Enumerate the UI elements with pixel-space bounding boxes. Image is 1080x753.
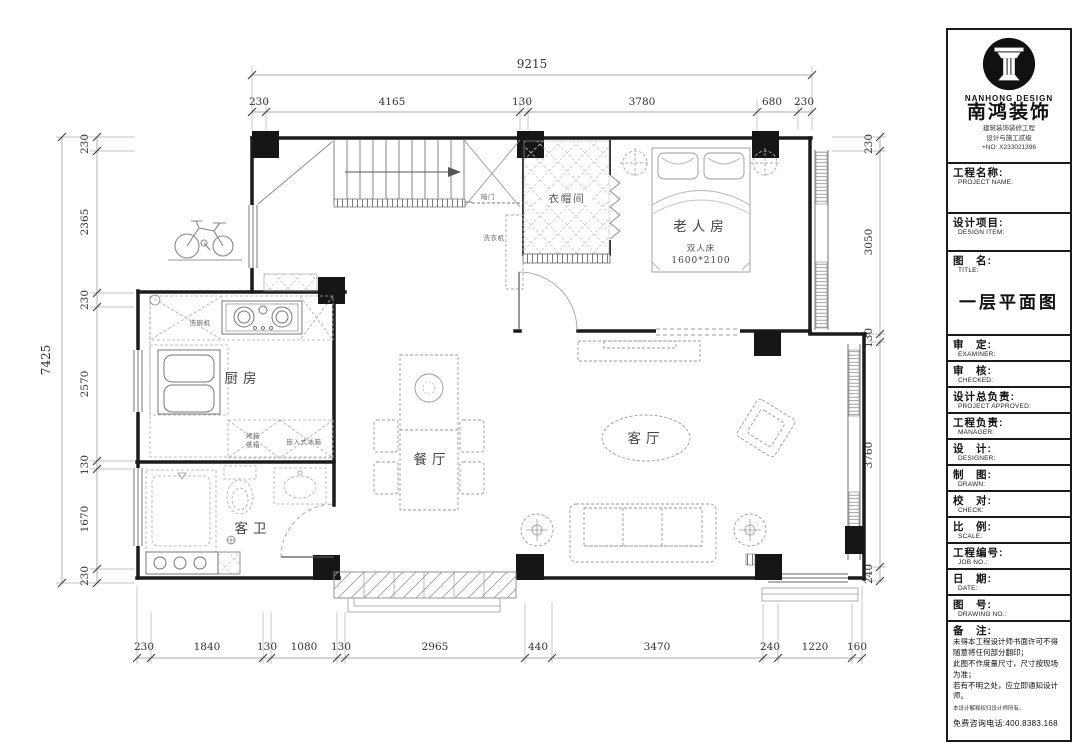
brand-tagline-2: 设计与施工贰级 (986, 134, 1032, 144)
field-project-name: 工程名称: PROJECT NAME: (948, 164, 1070, 214)
fridge-label: 嵌入式冰箱 (287, 437, 322, 446)
svg-text:3470: 3470 (644, 641, 671, 653)
svg-text:130: 130 (79, 455, 91, 475)
dining-area (374, 355, 484, 510)
elder-room-label: 老人房 (673, 219, 729, 234)
field-designer: 设 计: DESIGNER: (948, 440, 1070, 466)
svg-text:230: 230 (794, 96, 814, 108)
brand-area: NANHONG DESIGN 南鸿装饰 建筑装饰装修工程 设计与施工贰级 +NO… (948, 30, 1070, 164)
hotline: 免费咨询电话:400.8383.168 (953, 718, 1065, 729)
svg-text:3780: 3780 (629, 96, 656, 108)
field-checked: 审 核: CHECKED: (948, 362, 1070, 388)
dining-label: 餐厅 (414, 452, 451, 467)
note-line-4: 本设计解释权归设计师所有。 (953, 704, 1065, 712)
field-drawing-no: 图 号: DRAWING NO.: (948, 596, 1070, 622)
svg-text:680: 680 (762, 96, 782, 108)
svg-text:3050: 3050 (863, 229, 875, 256)
svg-text:1670: 1670 (79, 506, 91, 533)
svg-text:230: 230 (863, 134, 875, 154)
svg-text:130: 130 (512, 96, 532, 108)
nanhong-logo-icon (981, 36, 1037, 92)
entry-porch (334, 572, 516, 612)
svg-text:2365: 2365 (79, 209, 91, 236)
closet-label: 衣帽间 (548, 192, 586, 205)
brand-cert-no: +NO: X233021396 (982, 143, 1036, 153)
svg-text:240: 240 (760, 641, 780, 653)
bicycle-drawing (168, 221, 242, 260)
field-scale: 比 例: SCALE: (948, 518, 1070, 544)
svg-text:1080: 1080 (291, 641, 318, 653)
drawing-title: 一层平面图 (953, 288, 1065, 313)
wall-hatch (746, 554, 755, 565)
living-area (521, 341, 796, 562)
svg-text:230: 230 (134, 641, 154, 653)
corner-fitting (150, 295, 160, 305)
dim-left-total: 7425 (39, 345, 53, 376)
dishwasher-label: 洗碗机 (190, 318, 211, 327)
stair-hatch-band (334, 199, 465, 207)
staircase (258, 140, 523, 289)
field-check: 校 对: CHECK: (948, 492, 1070, 518)
armchair (736, 398, 797, 459)
svg-text:2570: 2570 (79, 371, 91, 398)
kitchen (150, 274, 333, 458)
dim-top-total: 9215 (517, 57, 548, 71)
field-job-no: 工程编号: JOB NO.: (948, 544, 1070, 570)
bed-label: 双人床 (687, 243, 716, 253)
svg-text:2965: 2965 (422, 641, 449, 653)
field-manager: 工程负责: MANAGER: (948, 414, 1070, 440)
svg-text:130: 130 (331, 641, 351, 653)
svg-text:230: 230 (249, 96, 269, 108)
svg-text:160: 160 (847, 641, 867, 653)
bed-size-label: 1600*2100 (671, 256, 730, 266)
hidden-door-label: 暗门 (481, 192, 495, 201)
note-line-2: 此图不作度量尺寸，尺寸按现场为准； (953, 659, 1065, 681)
bath-label: 客卫 (235, 520, 272, 536)
coil-symbol (849, 350, 859, 416)
field-design-item: 设计项目: DESIGN ITEM: (948, 214, 1070, 252)
brand-name-cn: 南鸿装饰 (967, 103, 1051, 124)
steamer-label: 蒸箱 (246, 440, 260, 449)
notes-area: 备 注: 未得本工程设计师书面许可不得随意将任何部分翻印； 此图不作度量尺寸，尺… (948, 622, 1070, 740)
walkin-closet: 衣帽间 (523, 141, 620, 263)
washer-label: 洗衣机 (484, 233, 505, 242)
field-examiner: 审 定: EXAMINER: (948, 336, 1070, 362)
note-line-3: 若有不明之处，应立即通知设计师。 (953, 681, 1065, 703)
floor-plan: 9215 230 4165 130 3780 680 230 7425 230 … (0, 0, 940, 753)
coil-symbol (816, 152, 827, 204)
closet-hatch-band (523, 254, 610, 263)
svg-text:230: 230 (79, 566, 91, 586)
guest-bath (146, 466, 334, 574)
living-label: 客厅 (628, 430, 665, 446)
kitchen-duct (264, 274, 317, 291)
stair-direction-arrow (448, 167, 461, 177)
coil-symbol (816, 262, 827, 328)
title-block: NANHONG DESIGN 南鸿装饰 建筑装饰装修工程 设计与施工贰级 +NO… (946, 28, 1072, 742)
drawing-sheet: 9215 230 4165 130 3780 680 230 7425 230 … (0, 0, 1080, 753)
svg-text:1840: 1840 (194, 641, 221, 653)
svg-text:230: 230 (79, 290, 91, 310)
brand-tagline-1: 建筑装饰装修工程 (983, 124, 1035, 134)
note-line-1: 未得本工程设计师书面许可不得随意将任何部分翻印； (953, 637, 1065, 659)
duct (506, 215, 523, 289)
field-date: 日 期: DATE: (948, 570, 1070, 596)
field-drawn: 制 图: DRAWN: (948, 466, 1070, 492)
oven-label: 烤箱 (246, 431, 260, 440)
field-title: 图 名: TITLE: 一层平面图 (948, 252, 1070, 336)
field-project-approved: 设计总负责: PROJECT APPROVED: (948, 388, 1070, 414)
kitchen-label: 厨房 (225, 371, 262, 386)
svg-text:230: 230 (79, 134, 91, 154)
svg-text:1220: 1220 (802, 641, 829, 653)
walls (137, 138, 865, 579)
svg-text:440: 440 (528, 641, 548, 653)
svg-text:4165: 4165 (379, 96, 406, 108)
svg-text:130: 130 (257, 641, 277, 653)
folding-door (610, 175, 620, 239)
